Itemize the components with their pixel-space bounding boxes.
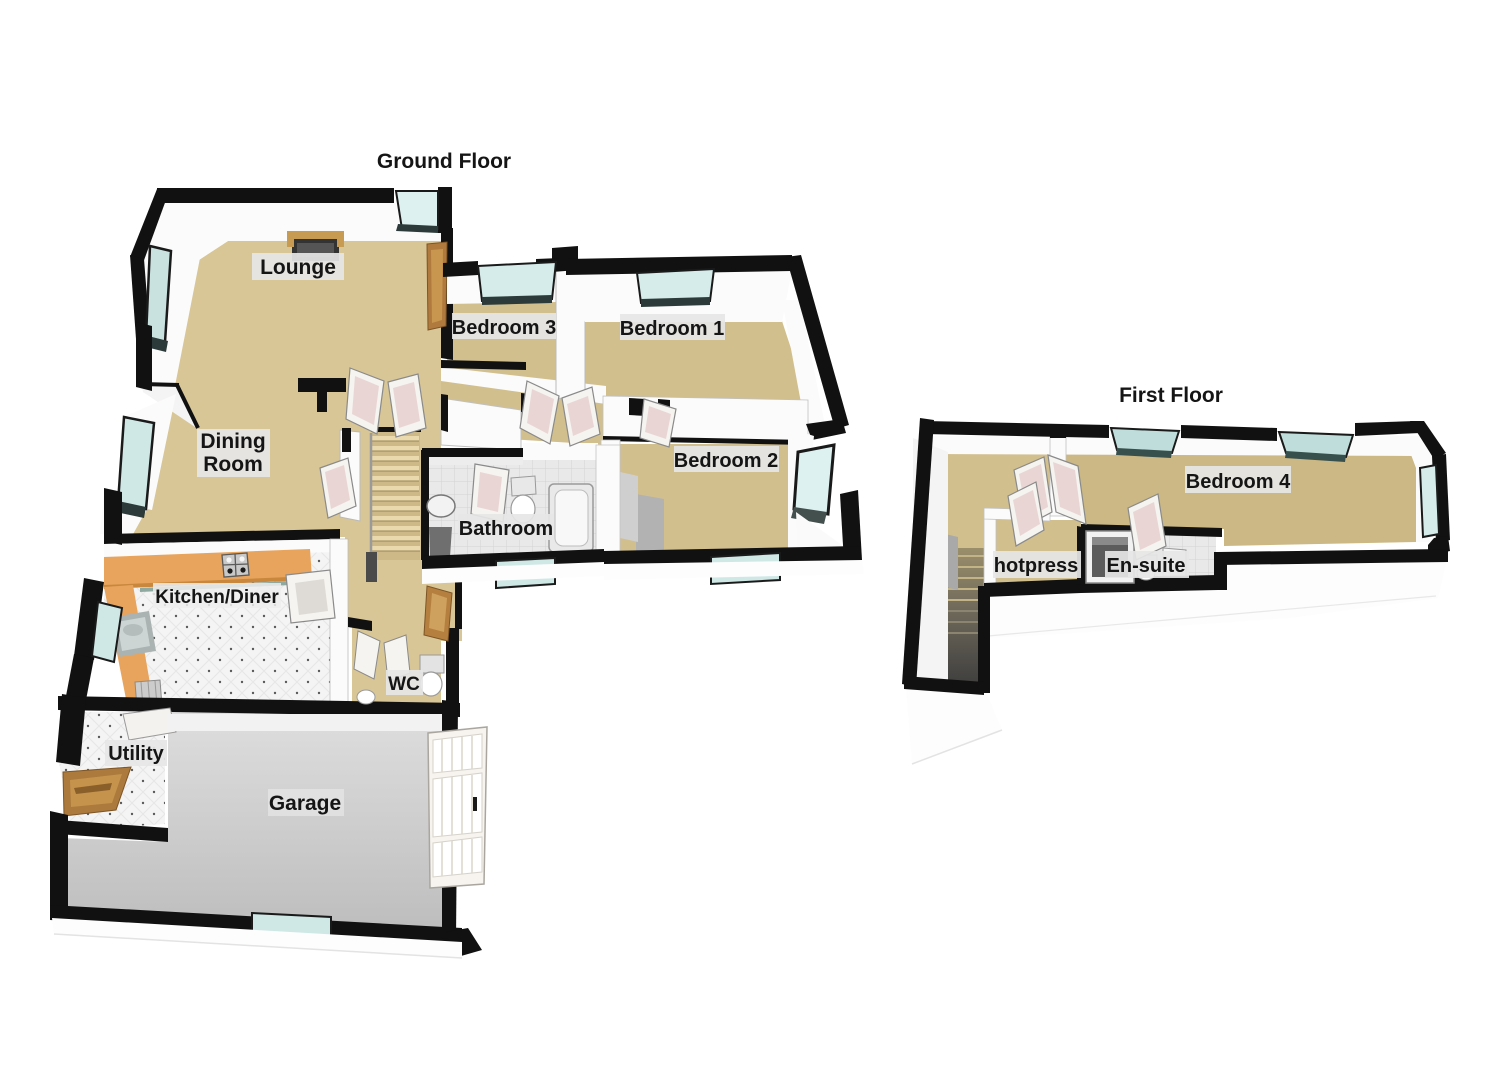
svg-text:Bedroom 4: Bedroom 4: [1186, 471, 1291, 493]
svg-text:Bathroom: Bathroom: [459, 518, 553, 540]
svg-text:Bedroom 1: Bedroom 1: [620, 318, 724, 340]
svg-text:En-suite: En-suite: [1107, 555, 1186, 577]
svg-text:WC: WC: [388, 674, 420, 695]
svg-text:Bedroom 3: Bedroom 3: [452, 317, 556, 339]
svg-text:Garage: Garage: [269, 792, 341, 815]
svg-text:hotpress: hotpress: [994, 555, 1078, 577]
svg-text:Lounge: Lounge: [260, 256, 336, 279]
svg-text:Ground Floor: Ground Floor: [377, 150, 511, 173]
svg-text:First Floor: First Floor: [1119, 384, 1223, 407]
svg-text:Room: Room: [203, 453, 263, 476]
svg-text:Kitchen/Diner: Kitchen/Diner: [155, 587, 279, 608]
svg-text:Dining: Dining: [200, 430, 265, 453]
svg-text:Bedroom 2: Bedroom 2: [674, 450, 778, 472]
svg-text:Utility: Utility: [108, 743, 164, 765]
